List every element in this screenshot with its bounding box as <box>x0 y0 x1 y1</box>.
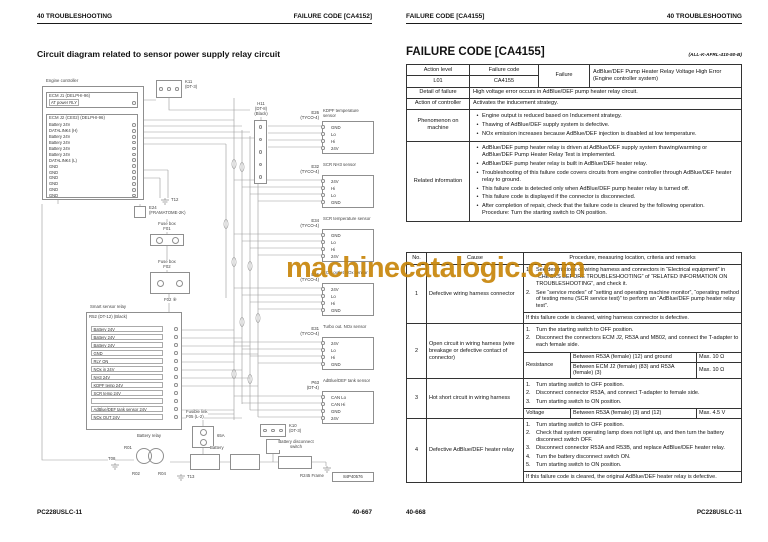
procedure-cell: 1.Turn the starting switch to OFF positi… <box>524 324 742 379</box>
pin-circle <box>279 429 283 433</box>
drawing-id-box: 84P40576 <box>332 472 374 482</box>
ecm-j2-pin-label: DATALINK4 (H) <box>49 128 78 133</box>
smart-relay-pin-label: SCR temp 24V <box>91 390 163 396</box>
ecm-j2-label: ECM J2 (CE02) (DELPHI-96) <box>49 116 105 121</box>
smart-relay-connector-label: R52 (DT-12) (Black) <box>89 315 127 320</box>
procedure-step: 1.Turn the starting switch to OFF positi… <box>526 327 739 334</box>
failure-code-value: CA4155 <box>470 76 539 87</box>
smart-sensor-relay-box: R52 (DT-12) (Black) Battery 24V Battery … <box>86 312 182 430</box>
measurement-desc: Between ECM J2 (female) (83) and R53A (f… <box>571 362 697 378</box>
sensor-pin-label: 24V <box>331 146 339 151</box>
action-of-controller-header: Action of controller <box>407 98 470 109</box>
failure-header: Failure <box>539 65 590 88</box>
sensor-box: 24VLoHiGND <box>322 283 374 316</box>
relay-k10-type: (DT-3) <box>289 429 301 434</box>
sensor-pin-label: 24V <box>331 179 339 184</box>
bullet-item: Troubleshooting of this failure code cov… <box>473 170 738 185</box>
step-number: 2. <box>526 390 536 397</box>
pin-circle <box>174 343 178 347</box>
step-text: Turn starting switch to ON position. <box>536 462 739 469</box>
pin-circle <box>174 359 178 363</box>
battery-relay-r01: R01 <box>124 446 132 451</box>
pin-circle <box>132 188 136 192</box>
ground-t13-label: T13 <box>187 475 194 480</box>
step-text: Disconnect connector R53A and R53B, and … <box>536 445 739 452</box>
fuse-box2-id: F02 <box>153 265 181 270</box>
ecm-j2-pin-list: Battery 24V DATALINK4 (H) Battery 24V <box>47 122 137 199</box>
ecm-j2-pin-label: GND <box>49 170 58 175</box>
measurement-value: Max. 10 Ω <box>697 362 742 378</box>
ecm-j1-pin-label: AT power RLY <box>49 99 79 106</box>
fusible-link-rating: 65A <box>217 434 225 439</box>
battery-relay <box>136 446 168 470</box>
pin-circle <box>321 240 325 244</box>
smart-relay-pin-label: NOx in 24V <box>91 366 163 372</box>
sensor-pin-label: Hi <box>331 186 335 191</box>
pin-circle <box>159 87 163 91</box>
smart-relay-pin-row: NOx in 24V <box>91 365 179 373</box>
procedure-cell: 1.Turn starting switch to OFF position.2… <box>524 419 742 483</box>
pin-circle <box>132 101 136 105</box>
pin-circle <box>175 87 179 91</box>
cause-no: 2 <box>407 324 427 379</box>
step-text: See “service modes” of “setting and oper… <box>536 290 739 311</box>
pin-circle <box>174 407 178 411</box>
pin-circle <box>321 125 325 129</box>
bullet-item: NOx emission increases because AdBlue/DE… <box>473 131 738 138</box>
left-header-section: 40 TROUBLESHOOTING <box>37 13 112 20</box>
bullet-text: This failure code is displayed if the co… <box>482 194 738 201</box>
battery-relay-r04: R04 <box>158 472 166 477</box>
failure-code-header: Failure code <box>470 65 539 76</box>
sensor-pin-row: 24V <box>323 340 373 347</box>
fuse-icon <box>172 237 179 244</box>
pin-circle <box>132 135 136 139</box>
relay-k11-type: (DT-3) <box>185 85 197 90</box>
bullet-item: This failure code is detected only when … <box>473 186 738 193</box>
step-number: 2. <box>526 335 536 349</box>
detail-of-failure-value: High voltage error occurs in AdBlue/DEF … <box>470 87 742 98</box>
procedure-step: 2.See “service modes” of “setting and op… <box>526 290 739 311</box>
procedure-step: 4.Turn the battery disconnect switch ON. <box>526 454 739 461</box>
cause-text: Hot short circuit in wiring harness <box>427 379 524 419</box>
cause-text: Defective AdBlue/DEF heater relay <box>427 419 524 483</box>
cause-no: 3 <box>407 379 427 419</box>
pin-circle <box>321 179 325 183</box>
pin-circle <box>167 87 171 91</box>
action-level-header: Action level <box>407 65 470 76</box>
fuse-box1-id: F01 <box>153 227 181 232</box>
fuse-icon <box>157 280 164 287</box>
bullet-text: AdBlue/DEF pump heater relay is built in… <box>482 161 738 168</box>
ecm-j2-pin-label: Battery 24V <box>49 146 70 151</box>
bullet-item: Thawing of AdBlue/DEF supply system is d… <box>473 122 738 129</box>
step-text: Turn starting switch to OFF position. <box>536 422 739 429</box>
smart-relay-title: Smart sensor relay <box>90 305 126 310</box>
sensor-pin-row: Lo <box>323 192 373 199</box>
sensor-pin-row: GND <box>323 307 373 314</box>
connector-h11-color: (Black) <box>250 112 272 117</box>
battery-label: Battery <box>210 446 224 451</box>
step-text: Turn the battery disconnect switch ON. <box>536 454 739 461</box>
failure-code-reference: (ALL-K-AFRL-410-50-B) <box>688 53 742 58</box>
sensor-connector-e31: E31 (TYCO-4) Turbo out. NOx sensor 24VLo… <box>284 326 374 378</box>
step-number: 3. <box>526 399 536 406</box>
ecm-j2-pin-label: Battery 24V <box>49 140 70 145</box>
connector-h11 <box>254 120 267 184</box>
ecm-j2-pin-label: DATALINK4 (L) <box>49 158 77 163</box>
procedure-step: 2.Disconnect connector R53A, and connect… <box>526 390 739 397</box>
cause-procedure-table: No. Cause Procedure, measuring location,… <box>406 252 742 483</box>
pin-circle <box>321 294 325 298</box>
sensor-pin-row: Hi <box>323 300 373 307</box>
measurement-value: Max. 10 Ω <box>697 352 742 362</box>
related-info-list: AdBlue/DEF pump heater relay is driven a… <box>473 145 738 218</box>
pin-circle <box>263 429 267 433</box>
sensor-pin-label: GND <box>331 362 341 367</box>
sensor-pin-label: Hi <box>331 355 335 360</box>
procedure-step: 1.Turn starting switch to OFF position. <box>526 382 739 389</box>
right-page-footer: 40-668 PC228USLC-11 <box>406 509 742 516</box>
left-page-footer: PC228USLC-11 40-667 <box>37 509 372 516</box>
sensor-pin-row: Lo <box>323 293 373 300</box>
procedure-steps: 1.Turn starting switch to OFF position.2… <box>524 379 741 407</box>
sensor-pin-label: GND <box>331 125 341 130</box>
sensor-pin-label: Lo <box>331 294 336 299</box>
measurement-desc: Between R53A (female) (3) and (12) <box>571 409 697 418</box>
procedure-step: 2.Check that system operating lamp does … <box>526 430 739 444</box>
pin-circle <box>321 395 325 399</box>
pin-circle <box>321 146 325 150</box>
fusible-link-id: F05 (L-2) <box>186 415 204 420</box>
phenomenon-header: Phenomenon on machine <box>407 110 470 142</box>
pin-circle <box>321 233 325 237</box>
fuse-box1 <box>150 234 184 246</box>
fuse-icon <box>176 280 183 287</box>
pin-circle <box>321 132 325 136</box>
step-number: 1. <box>526 422 536 429</box>
pin-circle <box>321 402 325 406</box>
right-footer-page-number: 40-668 <box>406 509 426 516</box>
smart-relay-pin-row: AdBlue/DEF tank sensor 24V <box>91 405 179 413</box>
pin-circle <box>321 308 325 312</box>
smart-relay-pin-label: RLY ON <box>91 358 163 364</box>
sensor-type: (TYCO-4) <box>284 169 319 174</box>
fuse-box2 <box>150 272 190 294</box>
pin-circle <box>271 429 275 433</box>
sensor-pin-label: 24V <box>331 341 339 346</box>
sensor-type: (TYCO-4) <box>284 331 319 336</box>
measurement-table: Voltage Between R53A (female) (3) and (1… <box>524 408 741 418</box>
sensor-pin-row: GND <box>323 361 373 368</box>
failure-info-table: Action level Failure code Failure AdBlue… <box>406 64 742 222</box>
sensor-pin-label: GND <box>331 233 341 238</box>
sensor-pin-row: 24V <box>323 415 373 422</box>
bullet-text: Thawing of AdBlue/DEF supply system is d… <box>482 122 738 129</box>
sensor-pin-row: GND <box>323 199 373 206</box>
left-footer-page-number: 40-667 <box>352 509 372 516</box>
sensor-pin-label: Lo <box>331 240 336 245</box>
engine-controller-label: Engine controller <box>46 79 78 84</box>
pin-circle <box>321 301 325 305</box>
smart-relay-pin-label: GND <box>91 350 163 356</box>
sensor-name: SCR temperature sensor <box>323 217 371 222</box>
right-footer-model: PC228USLC-11 <box>697 509 742 516</box>
cause-text: Open circuit in wiring harness (wire bre… <box>427 324 524 379</box>
pin-circle <box>174 367 178 371</box>
ecm-j2-pin-label: Battery 24V <box>49 134 70 139</box>
sensor-type: (TYCO-4) <box>284 115 319 120</box>
sensor-connector-e26: E26 (TYCO-4) KDPF temperature sensor GND… <box>284 110 374 162</box>
sensor-pin-label: Hi <box>331 247 335 252</box>
pin-circle <box>174 327 178 331</box>
sensor-name: Turbo out. NOx sensor <box>323 325 371 330</box>
pin-circle <box>321 139 325 143</box>
bullet-item: This failure code is displayed if the co… <box>473 194 738 201</box>
step-number: 4. <box>526 454 536 461</box>
relay-coil-circle <box>148 448 164 464</box>
step-text: Turn starting switch to ON position. <box>536 399 739 406</box>
sensor-box: 24VLoHiGND <box>322 337 374 370</box>
sensor-pin-row: Hi <box>323 138 373 145</box>
sensor-pin-row: Hi <box>323 185 373 192</box>
smart-relay-pin-label: KDPF temp 24V <box>91 382 163 388</box>
sensor-pin-row: Lo <box>323 239 373 246</box>
sensor-pin-row: Lo <box>323 131 373 138</box>
ecm-j2-pin-label: GND <box>49 193 58 198</box>
left-footer-model: PC228USLC-11 <box>37 509 82 516</box>
cause-row-3: 3 Hot short circuit in wiring harness 1.… <box>407 379 742 419</box>
pin-circle <box>132 182 136 186</box>
bullet-item: Engine output is reduced based on Induce… <box>473 113 738 120</box>
pin-circle <box>132 153 136 157</box>
cause-no: 4 <box>407 419 427 483</box>
f02-wire-tag: F02 ⑧ <box>164 298 176 303</box>
ecm-j2-pin-row: GND <box>47 193 137 199</box>
step-number: 5. <box>526 462 536 469</box>
pin-circle <box>321 200 325 204</box>
pin-circle <box>259 125 263 129</box>
measurement-desc: Between R53A (female) (12) and ground <box>571 352 697 362</box>
battery-2 <box>230 454 260 470</box>
pin-circle <box>259 138 263 142</box>
sensor-pin-label: Hi <box>331 139 335 144</box>
procedure-steps: 1.Turn starting switch to OFF position.2… <box>524 419 741 471</box>
sensor-pin-label: CAN Lo <box>331 395 346 400</box>
pin-circle <box>174 335 178 339</box>
pin-circle <box>174 351 178 355</box>
bullet-text: Troubleshooting of this failure code cov… <box>482 170 738 185</box>
action-level-value: L01 <box>407 76 470 87</box>
sensor-pin-label: Lo <box>331 193 336 198</box>
sensor-connector-e32: E32 (TYCO-4) SCR NH3 sensor 24VHiLoGND <box>284 164 374 216</box>
failure-description-line1: AdBlue/DEF Pump Heater Relay Voltage Hig… <box>593 69 738 76</box>
sensor-pin-label: GND <box>331 409 341 414</box>
ground-t08-label: T08 <box>108 457 115 462</box>
procedure-step: 5.Turn starting switch to ON position. <box>526 462 739 469</box>
battery-disconnect-switch <box>278 456 312 469</box>
sensor-pin-label: 24V <box>331 287 339 292</box>
sensor-pin-label: Hi <box>331 301 335 306</box>
measurement-type: Voltage <box>524 409 571 418</box>
pin-circle <box>132 141 136 145</box>
phenomenon-list: Engine output is reduced based on Induce… <box>473 113 738 138</box>
related-info-cell: AdBlue/DEF pump heater relay is driven a… <box>470 141 742 221</box>
left-header-failure-code: FAILURE CODE [CA4152] <box>294 13 372 20</box>
pin-circle <box>174 399 178 403</box>
procedure-steps: 1.Turn the starting switch to OFF positi… <box>524 324 741 351</box>
sensor-pin-label: CAN Hi <box>331 402 345 407</box>
circuit-diagram-title: Circuit diagram related to sensor power … <box>37 49 280 59</box>
related-info-header: Related information <box>407 141 470 221</box>
pin-circle <box>132 147 136 151</box>
ecm-j2-connector: ECM J2 (CE02) (DELPHI-96) Battery 24V DA… <box>46 114 138 198</box>
ecm-j2-pin-label: Battery 24V <box>49 152 70 157</box>
sensor-box: GNDLoHi24V <box>322 121 374 154</box>
pin-circle <box>321 287 325 291</box>
ground-icon <box>322 466 332 473</box>
step-number: 1. <box>526 327 536 334</box>
cause-row-2: 2 Open circuit in wiring harness (wire b… <box>407 324 742 379</box>
smart-relay-pin-label: Battery 24V <box>91 334 163 340</box>
failure-code-title: FAILURE CODE [CA4155] <box>406 46 545 58</box>
step-number: 2. <box>526 430 536 444</box>
bullet-text: After completion of repair, check that t… <box>482 203 738 218</box>
left-page-header: 40 TROUBLESHOOTING FAILURE CODE [CA4152] <box>37 13 372 24</box>
battery-disconnect-switch-label: Battery disconnect switch <box>278 440 314 450</box>
smart-relay-pin-list: Battery 24V Battery 24V Battery 24V <box>91 325 179 421</box>
pin-circle <box>132 176 136 180</box>
smart-relay-pin-row: Battery 24V <box>91 341 179 349</box>
step-text: Disconnect connector R53A, and connect T… <box>536 390 739 397</box>
bullet-item: AdBlue/DEF pump heater relay is driven a… <box>473 145 738 160</box>
ground-icon <box>176 474 186 481</box>
bullet-text: AdBlue/DEF pump heater relay is driven a… <box>482 145 738 160</box>
sensor-name: AdBlue/DEF tank sensor <box>323 379 371 384</box>
pin-circle <box>321 247 325 251</box>
pin-circle <box>259 175 263 179</box>
sensor-pin-label: GND <box>331 200 341 205</box>
table-row: Detail of failure High voltage error occ… <box>407 87 742 98</box>
bullet-text: NOx emission increases because AdBlue/DE… <box>482 131 738 138</box>
step-text: Turn the starting switch to OFF position… <box>536 327 739 334</box>
smart-relay-pin-row: NH3 24V <box>91 373 179 381</box>
smart-relay-pin-row <box>91 397 179 405</box>
pin-circle <box>132 194 136 198</box>
phenomenon-cell: Engine output is reduced based on Induce… <box>470 110 742 142</box>
measurement-row: Resistance Between R53A (female) (12) an… <box>524 352 741 362</box>
procedure-result: If this failure code is cleared, the ori… <box>524 471 741 482</box>
sensor-name: KDPF temperature sensor <box>323 109 371 118</box>
pin-circle <box>174 375 178 379</box>
watermark: machinecatalogic.com <box>286 252 585 285</box>
sensor-pin-label: Lo <box>331 132 336 137</box>
smart-relay-pin-row: Battery 24V <box>91 333 179 341</box>
procedure-step: 3.Turn starting switch to ON position. <box>526 399 739 406</box>
procedure-step: 3.Disconnect connector R53A and R53B, an… <box>526 445 739 452</box>
bullet-text: This failure code is detected only when … <box>482 186 738 193</box>
smart-relay-pin-row: Battery 24V <box>91 325 179 333</box>
pin-circle <box>321 409 325 413</box>
drawing-id: 84P40576 <box>343 474 363 479</box>
table-row: Phenomenon on machine Engine output is r… <box>407 110 742 142</box>
detail-of-failure-header: Detail of failure <box>407 87 470 98</box>
pin-circle <box>174 415 178 419</box>
pin-circle <box>259 150 263 154</box>
ecm-j2-pin-label: GND <box>49 164 58 169</box>
sensor-pin-row: 24V <box>323 286 373 293</box>
pin-circle <box>132 170 136 174</box>
failure-description-line2: (Engine controller system) <box>593 76 738 83</box>
smart-relay-pin-row: NOx OUT 24V <box>91 413 179 421</box>
pin-circle <box>321 193 325 197</box>
smart-relay-pin-row: SCR temp 24V <box>91 389 179 397</box>
smart-relay-pin-label: NOx OUT 24V <box>91 414 163 420</box>
sensor-pin-label: GND <box>331 308 341 313</box>
smart-relay-pin-row: KDPF temp 24V <box>91 381 179 389</box>
step-text: Check that system operating lamp does no… <box>536 430 739 444</box>
sensor-pin-row: CAN Lo <box>323 394 373 401</box>
pin-circle <box>132 164 136 168</box>
smart-relay-pin-label: Battery 24V <box>91 342 163 348</box>
table-row: Action level Failure code Failure AdBlue… <box>407 65 742 76</box>
fuse-icon <box>156 237 163 244</box>
sensor-pin-row: Hi <box>323 354 373 361</box>
step-number: 1. <box>526 382 536 389</box>
measurement-value: Max. 4.5 V <box>697 409 742 418</box>
action-of-controller-value: Activates the inducement strategy. <box>470 98 742 109</box>
pin-circle <box>321 341 325 345</box>
ecm-j2-pin-label: GND <box>49 181 58 186</box>
pin-circle <box>132 129 136 133</box>
pin-circle <box>321 186 325 190</box>
smart-relay-pin-label: Battery 24V <box>91 326 163 332</box>
sensor-pin-row: Lo <box>323 347 373 354</box>
frame-ground-label: R245 Frame <box>300 474 324 479</box>
table-row: Action of controller Activates the induc… <box>407 98 742 109</box>
step-number: 3. <box>526 445 536 452</box>
ground-icon <box>110 463 120 470</box>
right-header-failure-code: FAILURE CODE [CA4155] <box>406 13 484 20</box>
sensor-box: 24VHiLoGND <box>322 175 374 208</box>
sensor-pin-label: Lo <box>331 348 336 353</box>
smart-relay-pin-row: RLY ON <box>91 357 179 365</box>
sensor-pin-row: 24V <box>323 178 373 185</box>
measurement-type: Resistance <box>524 352 571 378</box>
ecm-j2-pin-label: GND <box>49 175 58 180</box>
cause-row-4: 4 Defective AdBlue/DEF heater relay 1.Tu… <box>407 419 742 483</box>
sensor-pin-row: GND <box>323 408 373 415</box>
pin-circle <box>321 355 325 359</box>
pin-circle <box>321 362 325 366</box>
failure-description-cell: AdBlue/DEF Pump Heater Relay Voltage Hig… <box>590 65 742 88</box>
smart-relay-pin-label: NH3 24V <box>91 374 163 380</box>
pin-circle <box>259 163 263 167</box>
sensor-box: CAN LoCAN HiGND24V <box>322 391 374 424</box>
bullet-text: Engine output is reduced based on Induce… <box>482 113 738 120</box>
sensor-connector-p63: P63 (DT-4) AdBlue/DEF tank sensor CAN Lo… <box>284 380 374 432</box>
smart-relay-pin-label: AdBlue/DEF tank sensor 24V <box>91 406 163 412</box>
connector-e24 <box>134 206 146 218</box>
sensor-pin-row: CAN Hi <box>323 401 373 408</box>
pin-circle <box>321 416 325 420</box>
bullet-item: After completion of repair, check that t… <box>473 203 738 218</box>
pin-circle <box>174 391 178 395</box>
pin-circle <box>174 383 178 387</box>
sensor-pin-row: GND <box>323 232 373 239</box>
sensor-name: SCR NH3 sensor <box>323 163 371 168</box>
smart-relay-pin-row: GND <box>91 349 179 357</box>
